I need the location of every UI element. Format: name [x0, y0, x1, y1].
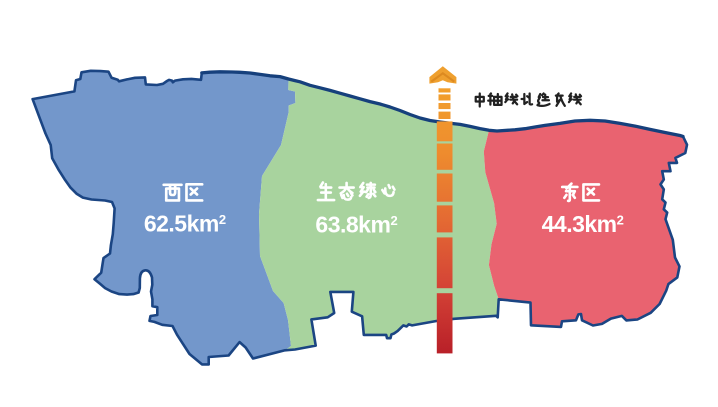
- svg-text:62.5km2: 62.5km2: [144, 211, 226, 237]
- svg-text:63.8km2: 63.8km2: [315, 212, 397, 238]
- svg-text:44.3km2: 44.3km2: [542, 211, 624, 237]
